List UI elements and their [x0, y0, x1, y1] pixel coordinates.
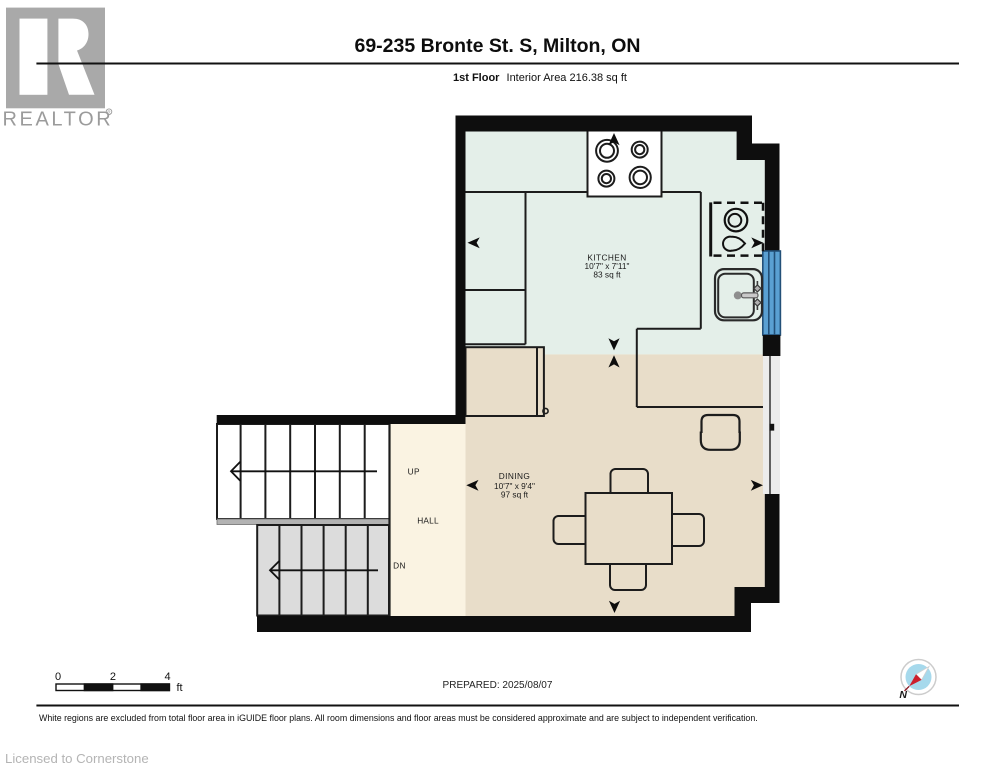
svg-text:2: 2	[110, 671, 116, 683]
svg-text:DINING: DINING	[499, 471, 530, 481]
svg-text:N: N	[899, 689, 907, 701]
svg-text:REALTOR: REALTOR	[3, 109, 114, 131]
svg-text:1st Floor Interior Area 216.38: 1st Floor Interior Area 216.38 sq ft	[453, 72, 627, 84]
svg-text:69-235 Bronte St. S, Milton, O: 69-235 Bronte St. S, Milton, ON	[354, 35, 640, 57]
svg-text:White regions are excluded fro: White regions are excluded from total fl…	[39, 713, 758, 723]
svg-text:ft: ft	[177, 682, 183, 694]
svg-text:83 sq ft: 83 sq ft	[593, 269, 621, 279]
svg-text:HALL: HALL	[417, 515, 439, 525]
svg-text:UP: UP	[408, 467, 420, 477]
svg-text:Licensed to Cornerstone: Licensed to Cornerstone	[5, 751, 149, 766]
svg-text:PREPARED: 2025/08/07: PREPARED: 2025/08/07	[443, 680, 553, 691]
svg-text:4: 4	[164, 671, 170, 683]
svg-text:97 sq ft: 97 sq ft	[501, 489, 529, 499]
svg-text:DN: DN	[393, 560, 406, 570]
svg-text:0: 0	[55, 671, 61, 683]
